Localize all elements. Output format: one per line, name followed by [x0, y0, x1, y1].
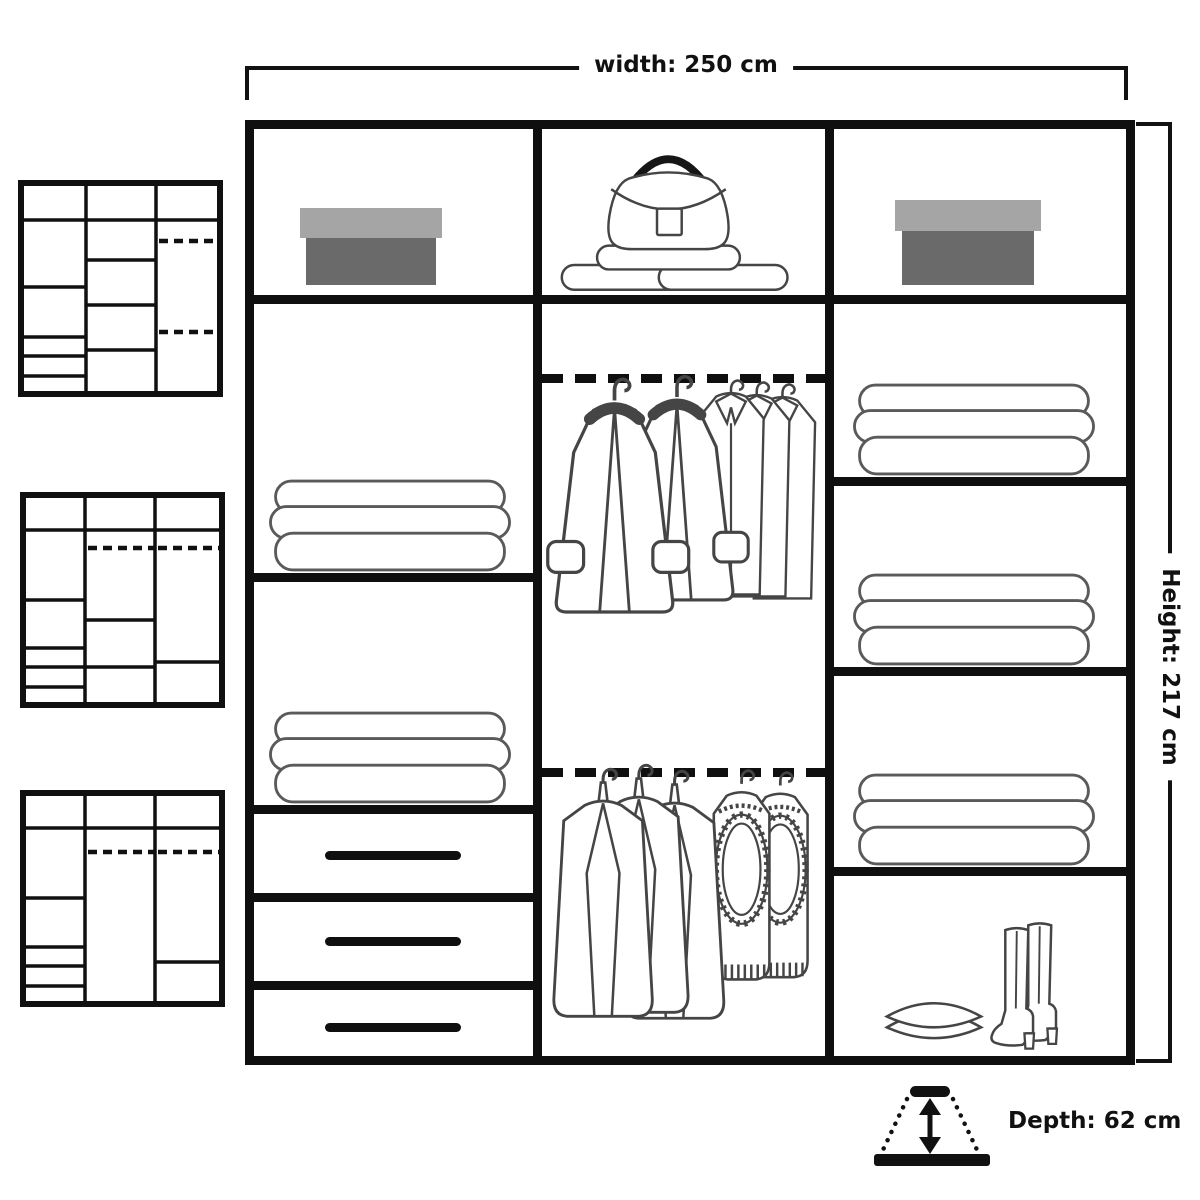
drawer-divider: [254, 981, 542, 990]
shelf-divider: [825, 667, 1126, 676]
folded-clothes-stack: [267, 711, 513, 805]
depth-icon: [866, 1084, 998, 1168]
wardrobe-front-view: [245, 120, 1135, 1065]
vertical-divider-1: [533, 129, 542, 1056]
drawer-handle-3: [325, 1023, 461, 1032]
height-dimension-label: Height: 217 cm: [1157, 553, 1183, 780]
shoe-box-lid: [895, 200, 1041, 231]
shelf-divider: [254, 573, 542, 582]
folded-clothes-stack: [851, 573, 1097, 667]
folded-clothes-stack: [851, 773, 1097, 867]
boots: [990, 921, 1078, 1051]
drawer-divider: [254, 893, 542, 902]
shelf-divider: [254, 805, 542, 814]
hanging-jackets-and-vests: [543, 758, 826, 1041]
shelf-divider: [825, 295, 1126, 304]
folded-clothes-stack: [267, 479, 513, 573]
width-dimension-tick-right: [1124, 66, 1128, 100]
layout-thumbnail-1: [18, 180, 223, 397]
drawer-handle-2: [325, 937, 461, 946]
shoe-box-lid: [300, 208, 442, 238]
height-dimension-tick-bottom: [1136, 1059, 1172, 1063]
shoe-box-base: [306, 238, 436, 285]
depth-dimension-label: Depth: 62 cm: [1008, 1108, 1181, 1134]
handbag-on-folded-stack: [552, 131, 792, 295]
shoe-box-base: [902, 231, 1034, 285]
width-dimension-tick-left: [245, 66, 249, 100]
drawer-handle-1: [325, 851, 461, 860]
hanging-coats-and-shirts: [544, 357, 826, 634]
height-dimension-tick-top: [1136, 122, 1172, 126]
handbag-clasp: [657, 209, 682, 235]
shelf-divider: [254, 295, 542, 304]
pillows: [880, 984, 988, 1051]
shelf-divider: [825, 477, 1126, 486]
vertical-divider-2: [825, 129, 834, 1056]
shelf-divider: [533, 295, 834, 304]
shelf-divider: [825, 867, 1126, 876]
layout-thumbnail-2: [20, 492, 225, 708]
wardrobe-dimensions-diagram: width: 250 cm Height: 217 cm: [0, 0, 1200, 1200]
folded-clothes-stack: [851, 383, 1097, 477]
boot-front: [991, 928, 1034, 1049]
width-dimension-label: width: 250 cm: [579, 52, 793, 78]
layout-thumbnail-3: [20, 790, 225, 1007]
